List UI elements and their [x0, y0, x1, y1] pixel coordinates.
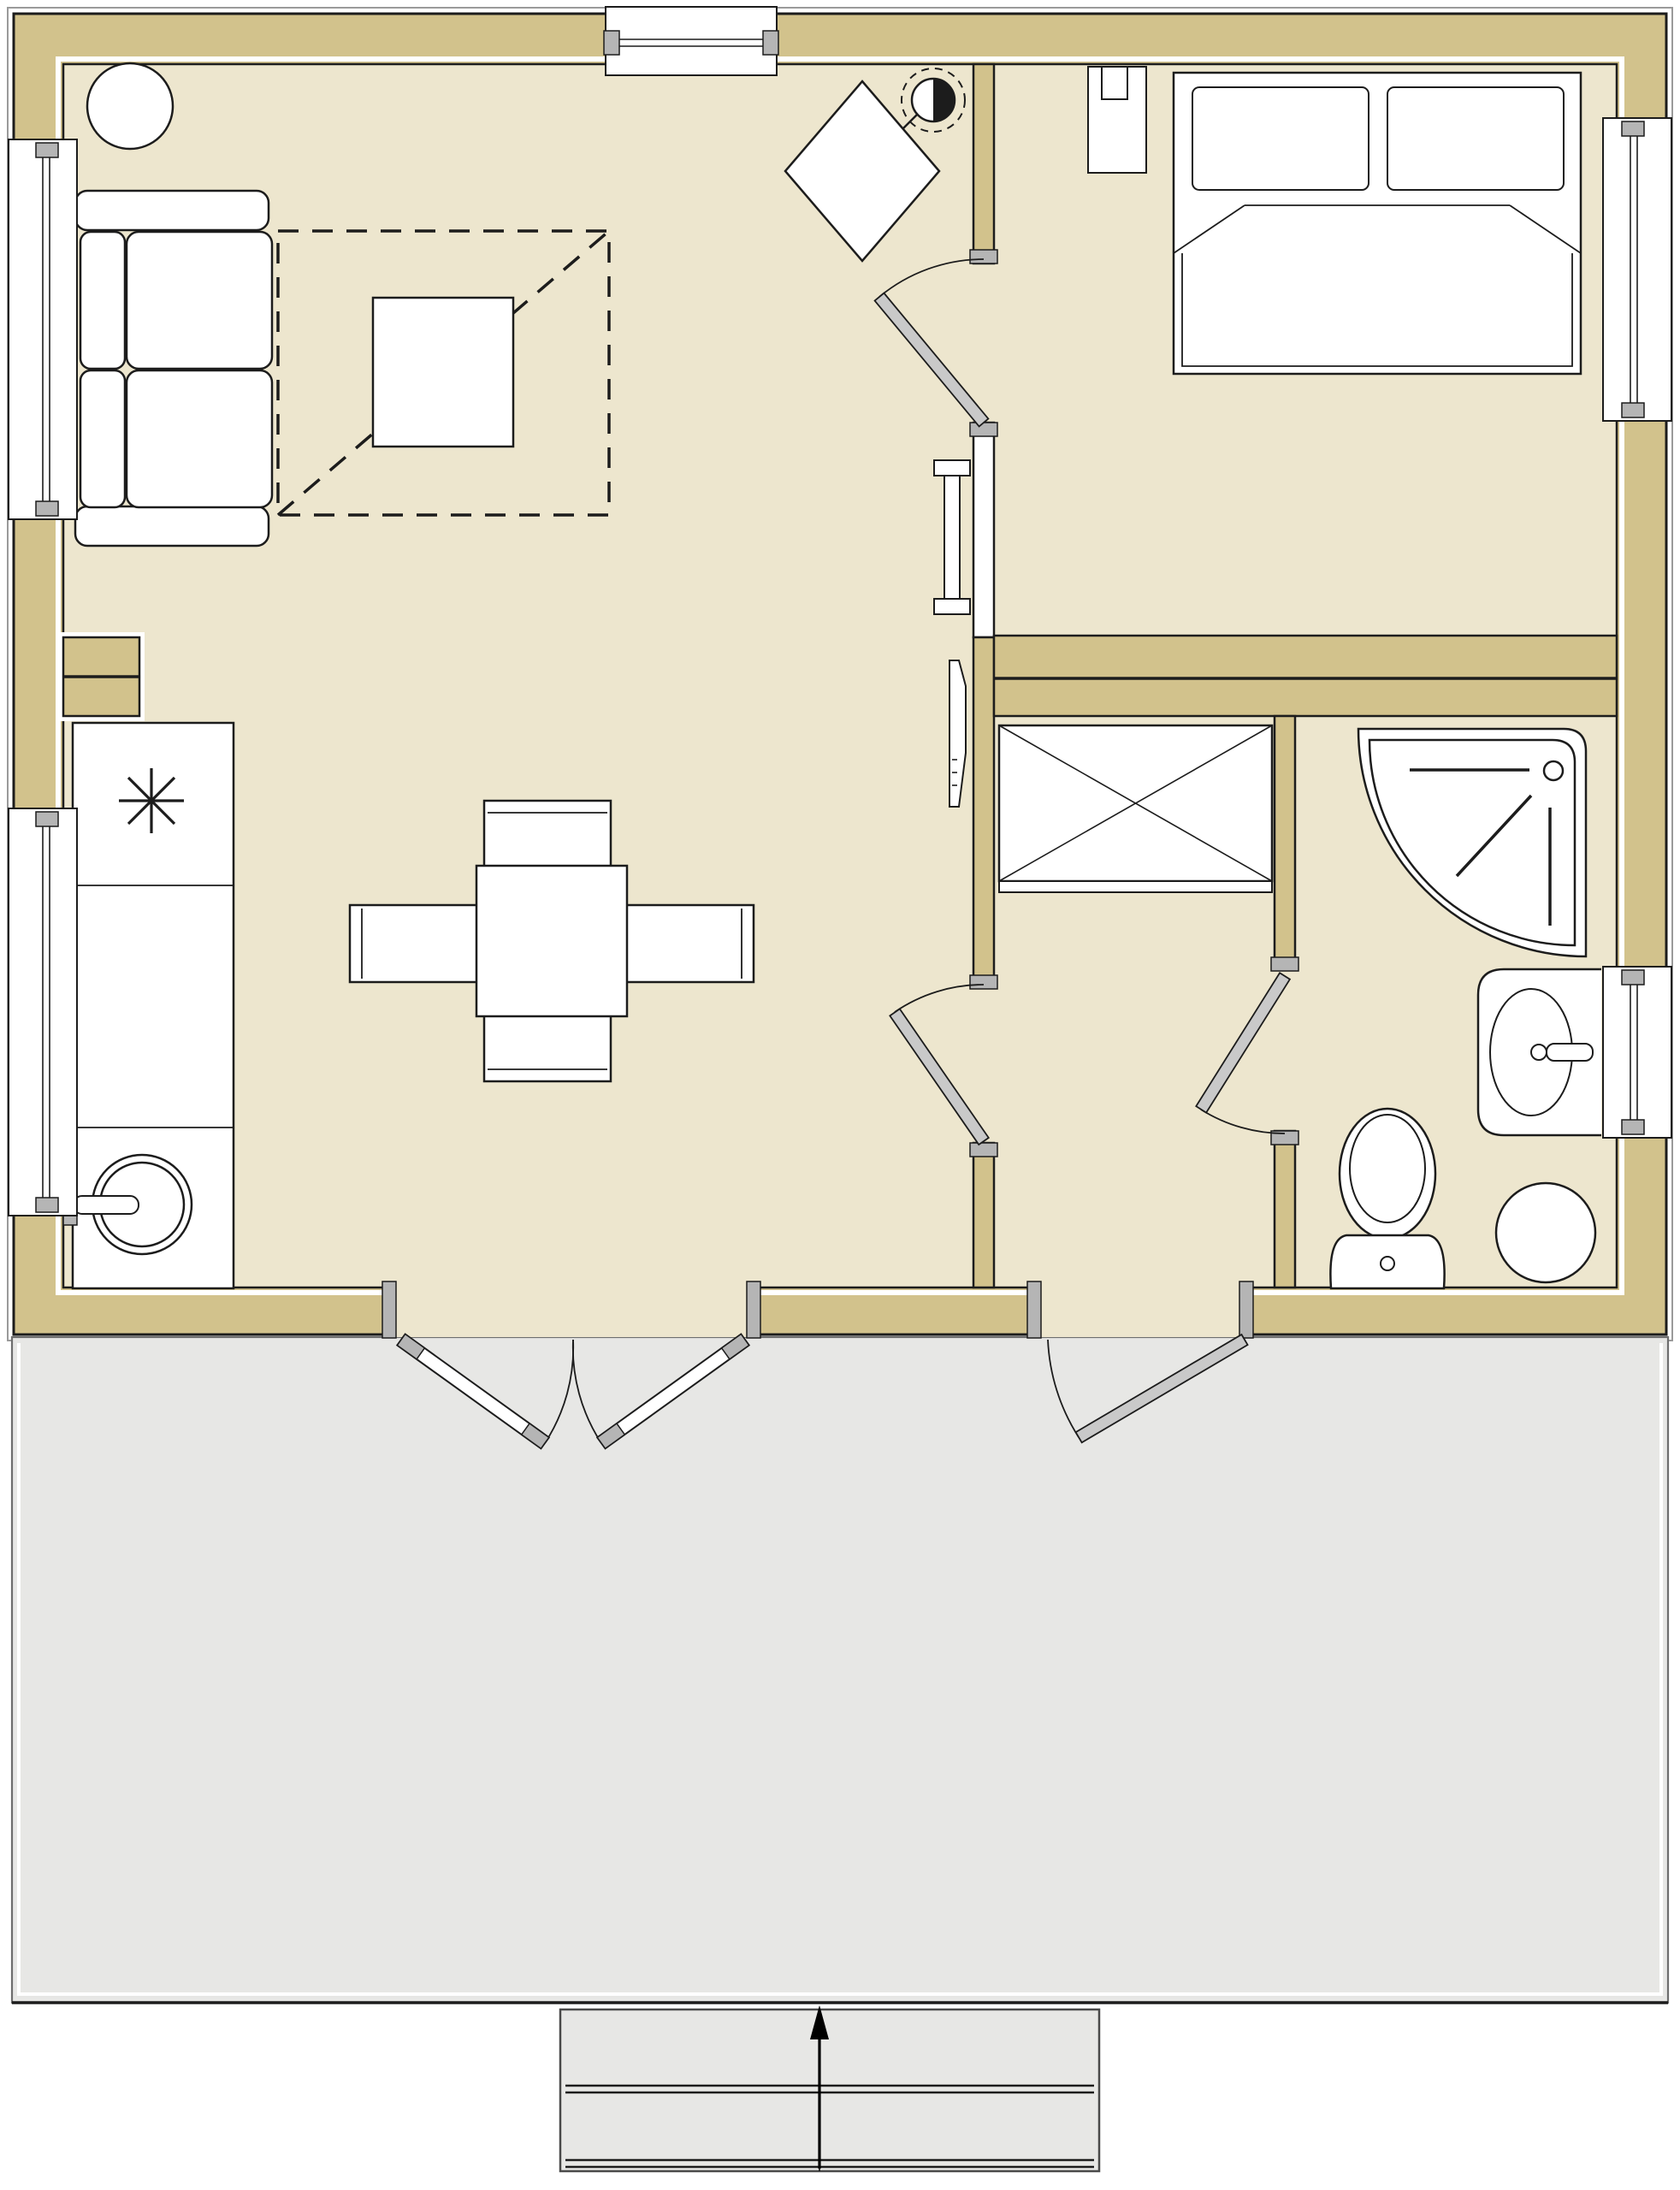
door-jamb-right [1239, 1281, 1253, 1338]
flush-button-icon [1381, 1257, 1394, 1270]
vanity-sink [1478, 969, 1601, 1135]
window-frame [606, 7, 777, 75]
sofa-armrest-bottom [75, 506, 269, 546]
door-jamb-right [747, 1281, 760, 1338]
sofa-seat-cushion-2 [127, 370, 272, 507]
sink-drain-icon [1531, 1045, 1547, 1060]
hall-wall-lower [973, 1143, 994, 1287]
bedroom-wall-pocket [973, 423, 994, 637]
chair-seat [626, 905, 754, 982]
door-jamb-top [970, 975, 997, 989]
chair-seat [350, 905, 477, 982]
window-block-top [36, 812, 58, 826]
window-block-bottom [1622, 403, 1644, 417]
window-block-right [763, 31, 778, 55]
table-lamp [1102, 67, 1127, 99]
door-jamb-top [1271, 957, 1298, 971]
media-unit-column [944, 476, 960, 599]
dining-chair-left [350, 905, 477, 982]
dining-table [476, 866, 627, 1016]
deck-steps [560, 2005, 1099, 2171]
door-jamb-bottom [970, 423, 997, 436]
wardrobe-front-track [999, 881, 1272, 892]
sofa-back-cushion-1 [80, 232, 125, 369]
sink-faucet [1547, 1044, 1593, 1061]
toilet-seat [1350, 1115, 1425, 1222]
door-jamb-left [1027, 1281, 1041, 1338]
kitchen-wall-stub [60, 632, 145, 721]
door-jamb-bottom [970, 1143, 997, 1157]
bedroom-divider-wall [994, 636, 1617, 716]
hall-wall-mid [973, 637, 994, 982]
chair-seat [484, 801, 611, 867]
floor-plan-drawing [0, 0, 1680, 2190]
media-unit-cap-bottom [934, 599, 970, 614]
window-block-top [1622, 970, 1644, 985]
deck [12, 1337, 1668, 2003]
toilet [1330, 1109, 1444, 1288]
sofa-armrest-top [75, 191, 269, 230]
steps-outline [560, 2009, 1099, 2171]
window-block-left [604, 31, 619, 55]
dining-chair-bottom [484, 1015, 611, 1081]
deck-surface [12, 1337, 1668, 2003]
window-block-bottom [36, 501, 58, 516]
window-bedroom-right [1603, 118, 1671, 421]
dining-chair-right [626, 905, 754, 982]
french-door-threshold [396, 1286, 747, 1337]
bathroom-wall-lower [1275, 1131, 1295, 1287]
sofa-seat-cushion-1 [127, 232, 272, 369]
window-bathroom-right [1603, 967, 1671, 1138]
closet [999, 725, 1272, 892]
sofa [75, 191, 272, 546]
entry-door-threshold [1041, 1286, 1239, 1337]
window-top [604, 7, 778, 75]
sofa-back-cushion-2 [80, 370, 125, 507]
window-living-left [9, 139, 77, 519]
door-jamb-left [382, 1281, 396, 1338]
window-block-top [1622, 121, 1644, 136]
cooktop-burner-icon [119, 768, 184, 833]
pillow-right [1387, 87, 1564, 190]
faucet-spout [74, 1196, 139, 1214]
round-hamper [1496, 1183, 1595, 1282]
window-kitchen-left [9, 808, 77, 1216]
chair-seat [484, 1015, 611, 1081]
dining-chair-top [484, 801, 611, 867]
bedroom-wall-upper [973, 64, 994, 263]
round-side-table [87, 63, 173, 149]
bed-double [1174, 73, 1581, 374]
door-jamb-top [970, 250, 997, 263]
window-block-bottom [36, 1198, 58, 1212]
bathroom-wall-upper [1275, 716, 1295, 964]
window-block-top [36, 143, 58, 157]
coffee-table [373, 298, 513, 447]
window-block-bottom [1622, 1120, 1644, 1134]
media-unit-cap-top [934, 460, 970, 476]
kitchen [63, 723, 234, 1288]
floor-plan-page [0, 0, 1680, 2190]
pillow-left [1192, 87, 1369, 190]
